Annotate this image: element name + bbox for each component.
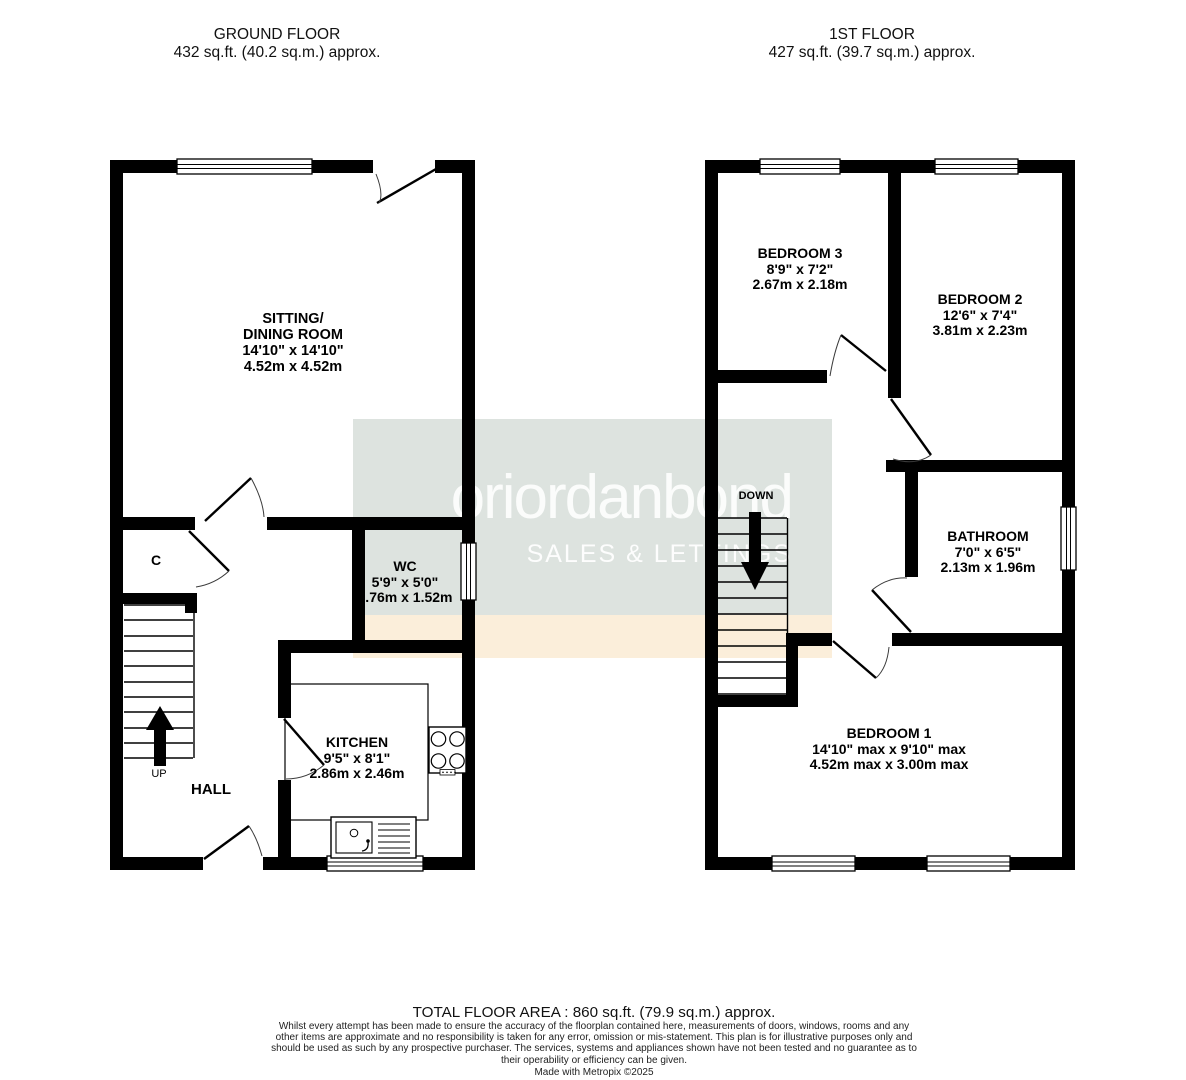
label-cupboard: C [151,553,161,569]
ground-floor-stairs [124,605,194,766]
up-arrow-icon [146,706,174,766]
label-down: DOWN [739,490,774,502]
label-bathroom: BATHROOM 7'0" x 6'5" 2.13m x 1.96m [941,529,1036,576]
window-bathroom-right [1061,507,1076,570]
door-cupboard [189,531,229,587]
window-wc-right [461,543,476,600]
label-hall: HALL [191,782,231,798]
window-sitting-top [177,159,312,174]
total-floor-area: TOTAL FLOOR AREA : 860 sq.ft. (79.9 sq.m… [413,1004,776,1021]
credit-text: Made with Metropix ©2025 [267,1067,922,1078]
label-bedroom1: BEDROOM 1 14'10" max x 9'10" max 4.52m m… [810,726,969,773]
label-kitchen: KITCHEN 9'5" x 8'1" 2.86m x 2.46m [310,735,405,782]
label-up: UP [151,768,166,780]
door-entry-top [376,169,436,203]
footer-disclaimer-block: Whilst every attempt has been made to en… [267,1021,922,1078]
door-bedroom2 [891,399,931,462]
sink-icon [331,817,416,858]
window-bedroom3-top [760,159,840,174]
window-bedroom1-bottom-right [927,856,1010,871]
window-bedroom1-bottom-left [772,856,855,871]
disclaimer-text: Whilst every attempt has been made to en… [267,1021,922,1066]
door-bathroom [872,578,911,632]
door-front [204,826,262,859]
label-bedroom3: BEDROOM 3 8'9" x 7'2" 2.67m x 2.18m [753,246,848,293]
door-sitting-room [205,478,264,521]
floorplan-page: GROUND FLOOR 432 sq.ft. (40.2 sq.m.) app… [0,0,1186,1080]
label-sitting-dining-room: SITTING/ DINING ROOM 14'10" x 14'10" 4.5… [242,311,343,375]
down-arrow-icon [741,512,769,590]
window-bedroom2-top [935,159,1018,174]
label-wc: WC 5'9" x 5'0" 1.76m x 1.52m [358,559,453,606]
door-bedroom1 [833,641,889,678]
first-floor-stairs [718,512,788,694]
door-bedroom3 [830,335,886,376]
label-bedroom2: BEDROOM 2 12'6" x 7'4" 3.81m x 2.23m [933,292,1028,339]
hob-icon [429,727,466,775]
